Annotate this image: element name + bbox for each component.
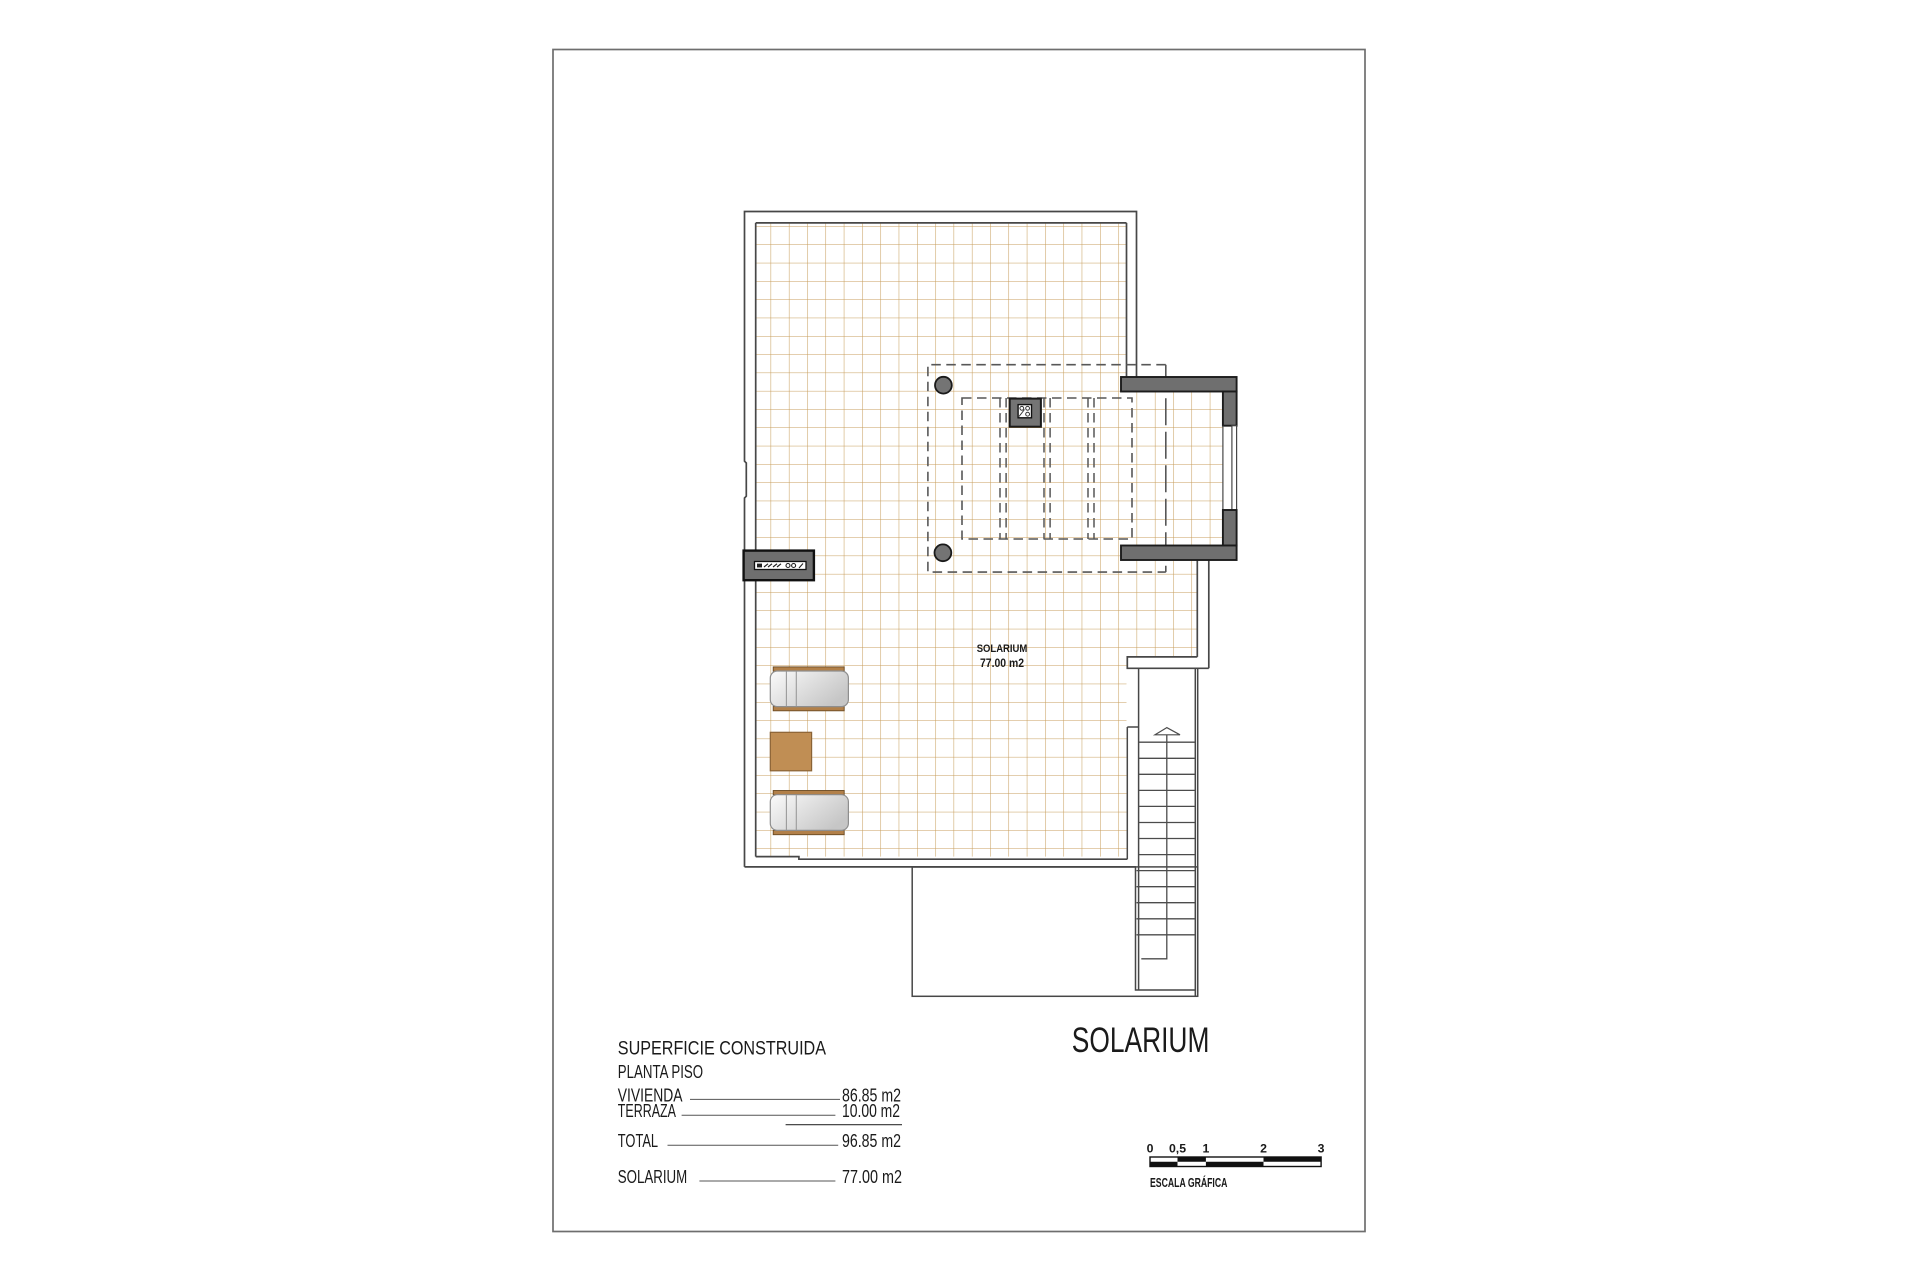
svg-text:PLANTA PISO: PLANTA PISO — [618, 1062, 703, 1082]
svg-text:SOLARIUM: SOLARIUM — [977, 643, 1028, 655]
svg-text:0: 0 — [1147, 1142, 1154, 1156]
svg-text:77.00 m2: 77.00 m2 — [842, 1167, 902, 1187]
svg-text:0,5: 0,5 — [1169, 1142, 1186, 1156]
svg-text:SOLARIUM: SOLARIUM — [618, 1167, 687, 1187]
svg-text:SOLARIUM: SOLARIUM — [1072, 1020, 1210, 1060]
svg-text:10.00 m2: 10.00 m2 — [842, 1101, 900, 1121]
svg-text:ESCALA GRÁFICA: ESCALA GRÁFICA — [1150, 1175, 1228, 1190]
svg-text:SUPERFICIE CONSTRUIDA: SUPERFICIE CONSTRUIDA — [618, 1038, 826, 1059]
svg-text:2: 2 — [1260, 1142, 1267, 1156]
svg-text:TOTAL: TOTAL — [618, 1131, 658, 1151]
svg-text:77.00 m2: 77.00 m2 — [980, 656, 1024, 670]
svg-text:TERRAZA: TERRAZA — [618, 1101, 676, 1121]
svg-text:3: 3 — [1318, 1142, 1325, 1156]
svg-text:96.85 m2: 96.85 m2 — [842, 1131, 901, 1151]
svg-text:1: 1 — [1202, 1142, 1209, 1156]
